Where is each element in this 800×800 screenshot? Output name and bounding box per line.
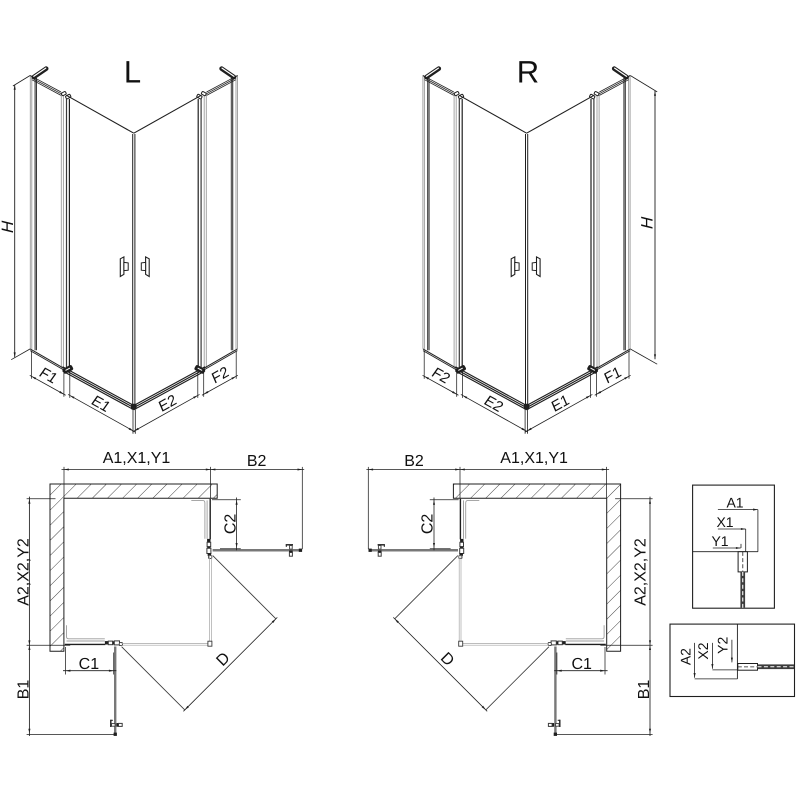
svg-text:B1: B1: [15, 680, 32, 700]
svg-text:L: L: [124, 55, 141, 90]
svg-text:A1,X1,Y1: A1,X1,Y1: [500, 450, 568, 467]
svg-text:R: R: [517, 55, 539, 90]
svg-text:A2: A2: [677, 648, 693, 665]
svg-text:B2: B2: [247, 453, 267, 470]
svg-text:A2,X2,Y2: A2,X2,Y2: [633, 538, 650, 606]
svg-text:B2: B2: [404, 453, 424, 470]
svg-text:A1,X1,Y1: A1,X1,Y1: [103, 450, 171, 467]
svg-text:A1: A1: [726, 494, 743, 510]
svg-text:X1: X1: [716, 514, 733, 530]
svg-text:A2,X2,Y2: A2,X2,Y2: [15, 538, 32, 606]
svg-text:Y1: Y1: [711, 533, 728, 549]
svg-text:X2: X2: [695, 642, 711, 659]
svg-text:Y2: Y2: [715, 637, 731, 654]
svg-text:B1: B1: [636, 680, 653, 700]
